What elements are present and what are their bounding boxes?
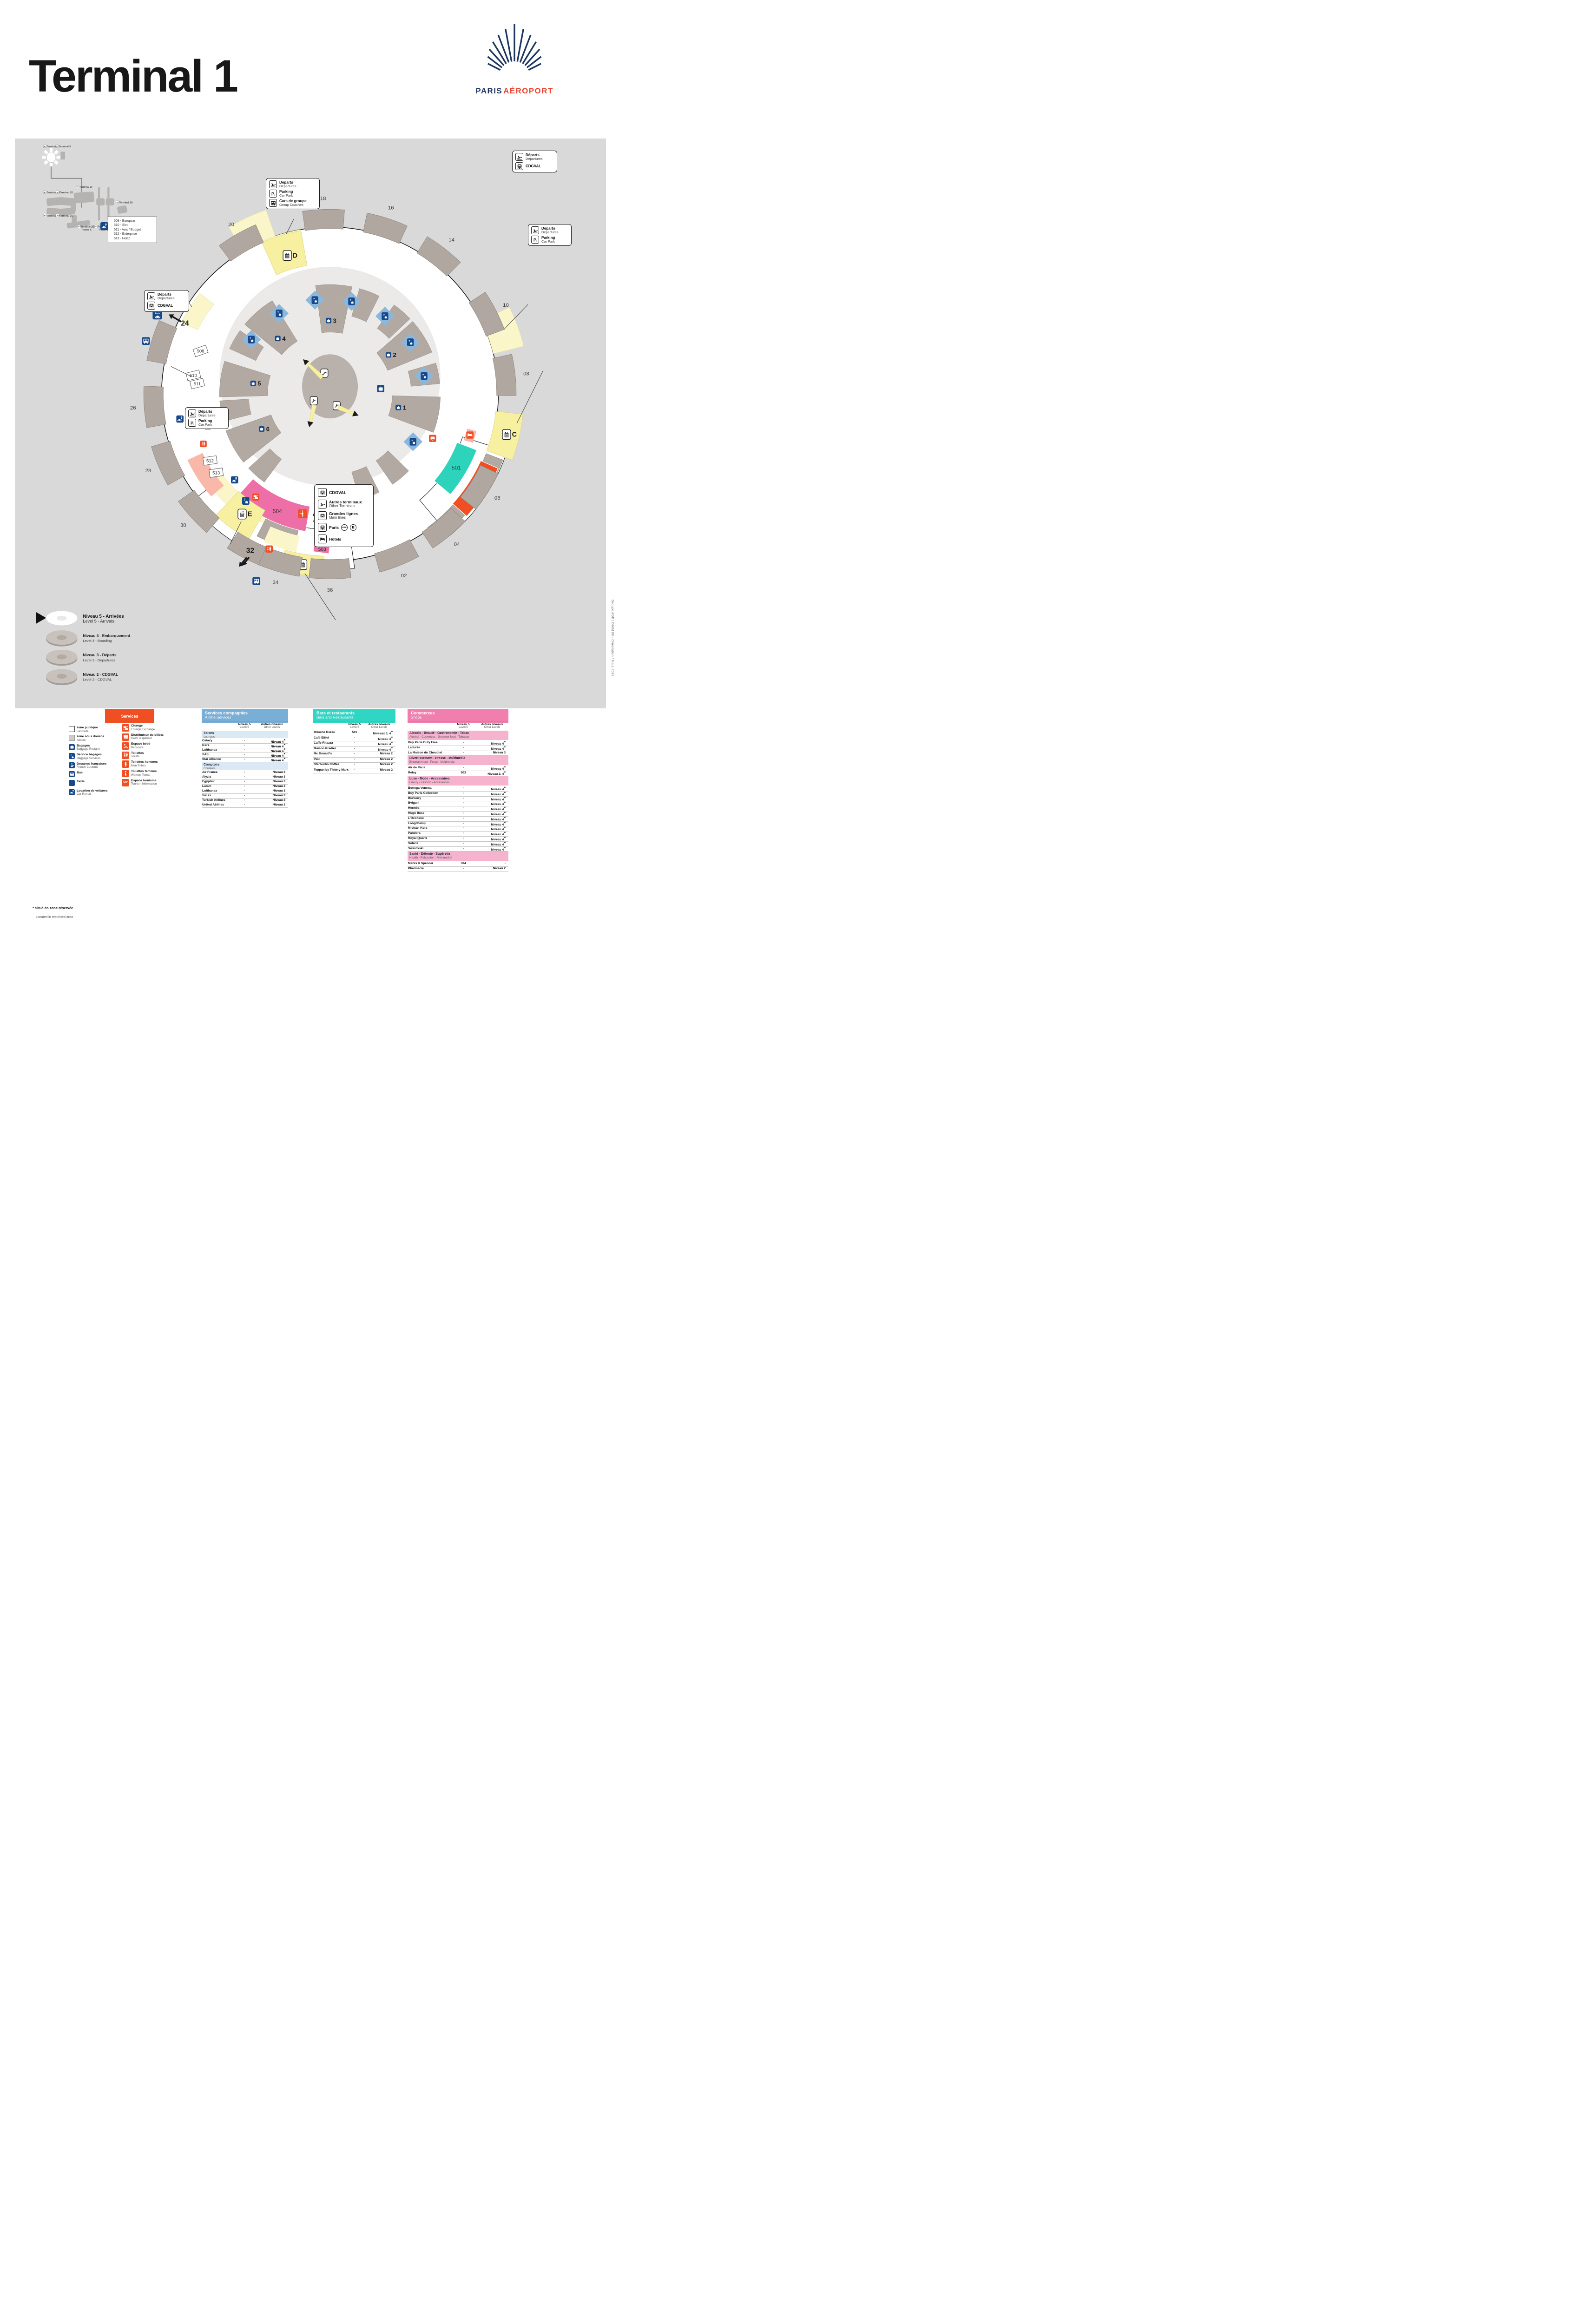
legend-item-baggage-services: Service bagagesBaggage Services [69,753,102,760]
table-row: Turkish Airlines-Niveau 3 [202,799,288,803]
callout-departures-parking-right: DépartsDepartures ParkingCar Park [528,224,572,246]
car-rental-entry: 510 - Sixt [114,223,154,227]
logo-rays-icon [487,24,541,70]
restricted-area-footnote: * Situé en zone réservée Located in rest… [33,903,73,920]
legend-item-foreign-exchange: ChangeForeign Exchange [122,724,155,732]
table-row: Paul-Niveau 2 [313,758,395,763]
svg-text:E: E [248,511,252,518]
svg-text:5: 5 [257,380,261,387]
svg-text:501: 501 [452,464,461,471]
legend-banner-services: Services [105,709,154,723]
cdgval-icon [147,302,155,310]
svg-text:Terminal 2F: Terminal 2F [79,186,93,189]
table-section-band: Divertissement - Presse - MultimédiaEnte… [408,756,508,765]
table-row: Hermès-Niveau 4* [408,806,508,812]
svg-text:16: 16 [388,205,394,211]
car-rental-entry: 513 - Hertz [114,237,154,241]
table-row: Burberry-Niveau 4* [408,797,508,802]
publication-credit: Groupe ADP / DIAM 88 - Orientation / Mar… [611,600,614,706]
svg-text:508: 508 [197,349,204,354]
legend-item-women-toilets: Toilettes femmesWomen Toilets [122,770,157,777]
callout-departures-cdgval-right: DépartsDepartures CDGVAL [512,151,557,172]
car-rental-entry: 512 - Enterprise [114,232,154,236]
table-column-headers: Niveau 5Level 5 Autres niveauxOther Leve… [202,721,288,722]
table-row: Caffe Ritazza-Niveau 4* [313,741,395,747]
table-row: La Maison du Chocolat-Niveau 3 [408,751,508,756]
table-row: Mc Donald's-Niveau 2 [313,752,395,758]
table-row: Bvlgari-Niveau 4* [408,801,508,806]
svg-text:1: 1 [403,404,406,411]
svg-text:24: 24 [181,319,189,327]
table-row: Pharmacie-Niveau 2 [408,867,508,872]
car-rental-icon [100,222,108,230]
legend-table-airlines: Niveau 5Level 5 Autres niveauxOther Leve… [202,721,288,810]
svg-text:Niveau 2 - CDGVAL: Niveau 2 - CDGVAL [83,673,118,677]
legend-item-car-rental: Location de voituresCar Rental [69,789,107,796]
svg-text:6: 6 [266,426,270,433]
table-section-band: Alcools - Beauté - Gastronomie - TabacAl… [408,731,508,740]
parking-icon [188,419,196,427]
table-row: Alyzia-Niveau 3 [202,775,288,780]
car-rental-list: 508 - Europcar510 - Sixt511 - Avis / Bud… [108,217,157,243]
svg-text:Level 3 - Departures: Level 3 - Departures [83,658,115,662]
parking-icon [269,190,277,198]
svg-text:2: 2 [393,351,396,358]
svg-text:512: 512 [206,458,214,463]
line-b-badge: B [350,524,356,531]
table-section-band: ComptoirsCounters [202,762,288,770]
svg-text:510: 510 [190,373,197,378]
table-row: Egyptair-Niveau 3 [202,780,288,785]
svg-text:30: 30 [180,522,186,528]
table-row: Teppan by Thierry Marx-Niveau 2 [313,768,395,774]
legend-item-men-toilets: Toilettes hommesMen Toilets [122,760,158,768]
table-row: Swarovski-Niveau 4* [408,847,508,852]
page-title: Terminal 1 [29,50,237,102]
legend-item-tourism-information: 502Espace tourismeTourism Information [122,779,157,786]
legend-table-shops: Niveau 5Level 5 Autres niveauxOther Leve… [408,721,508,874]
legend-item-baggage-reclaim: BagagesBaggage Reclaim [69,744,100,751]
table-row: L'Occitane-Niveau 4* [408,817,508,822]
svg-text:Terminal 2E: Terminal 2E [81,226,94,229]
table-row: Buy Paris Duty Free-Niveau 4* [408,741,508,746]
table-row: Star Alliance-Niveau 4* [202,758,288,762]
table-section-band: Santé - Détente - SupéretteHealth - Rela… [408,852,508,861]
legend-table-bars: Niveau 5Level 5 Autres niveauxOther Leve… [313,721,395,775]
table-row: Lufthansa-Niveau 3 [202,789,288,794]
svg-text:04: 04 [454,541,460,547]
table-row: Longchamp-Niveau 4* [408,822,508,827]
svg-text:10: 10 [503,303,509,308]
legend-item-babycare: Espace bébéBabycare [122,742,151,750]
table-row: Brioche Dorée501Niveaux 3, 4* [313,731,395,736]
taxi-icon: Taxis [152,310,162,319]
cdgval-icon [515,162,523,170]
car-rental-entry: 511 - Avis / Budget [114,228,154,232]
table-row: Ladurée-Niveau 4* [408,746,508,751]
table-section-band: SalonsLounges [202,731,288,738]
svg-text:20: 20 [228,222,234,228]
svg-text:Niveau 3 - Départs: Niveau 3 - Départs [83,653,117,657]
svg-text:C: C [512,431,517,439]
cdgval-icon [318,488,327,497]
table-row: Pandora-Niveau 4* [408,832,508,837]
svg-text:28: 28 [145,468,151,474]
paris-aeroport-logo: PARISAÉROPORT [465,22,564,102]
callout-departures-parking-coaches: DépartsDepartures ParkingCar Park Cars d… [266,178,320,209]
table-row: Air de Paris-Niveau 4* [408,766,508,771]
departures-icon [515,153,523,161]
coach-icon [269,199,277,207]
departures-icon [147,292,155,300]
rer-badge: RER [341,524,348,531]
table-row: Solaris-Niveau 4* [408,842,508,847]
svg-text:Niveau 4 - Embarquement: Niveau 4 - Embarquement [83,634,130,638]
table-row: Marks & Spencer504- [408,862,508,867]
svg-text:Taxis: Taxis [155,312,160,314]
svg-text:Terminal 3: Terminal 3 [59,145,71,148]
table-row: Galaxy-Niveau 4* [202,739,288,744]
legend-item-cash-dispenser: Distributeur de billetsCash Dispenser [122,733,164,741]
logo-text: PARISAÉROPORT [475,86,553,95]
table-row: Latam-Niveau 3 [202,785,288,789]
main-lines-icon [318,511,327,520]
svg-text:02: 02 [401,573,407,579]
paris-rer-icon [318,523,327,532]
callout-transport: CDGVAL Autres terminauxOther Terminals G… [314,484,374,547]
callout-departures-parking-bottom: DépartsDepartures ParkingCar Park [185,407,229,429]
svg-text:06: 06 [494,495,501,501]
svg-text:Terminal 2D: Terminal 2D [59,191,73,194]
svg-text:3: 3 [333,317,336,324]
table-row: Air France-Niveau 3 [202,771,288,775]
legend-item-bus: Bus [69,771,83,777]
svg-text:Level 5 - Arrivals: Level 5 - Arrivals [83,619,114,624]
table-row: Maison Pradier-Niveau 4* [313,747,395,753]
legend-item-french-customs: Douanes françaisesFrench Customs [69,762,106,769]
table-row: Hugo Boss-Niveau 4* [408,812,508,817]
table-row: Lufthansa-Niveau 4* [202,748,288,753]
table-row: Starbucks Coffee-Niveau 2 [313,763,395,768]
svg-text:511: 511 [194,382,201,387]
svg-text:26: 26 [130,405,136,411]
departures-icon [188,409,196,417]
car-rental-entry: 508 - Europcar [114,219,154,223]
table-row: Swiss-Niveau 3 [202,794,288,799]
legend-item-airside: zone sous douaneAirside [69,735,104,742]
departures-icon [531,226,539,234]
minimap-terminal-label: Terminal 2F [76,185,93,189]
svg-text:D: D [293,252,297,259]
table-row: Café Eiffel-Niveau 4* [313,736,395,742]
table-row: Buy Paris Collection-Niveau 4* [408,792,508,797]
table-section-band: Luxe - Mode - AccessoiresLuxury - Fashio… [408,776,508,786]
callout-departures-cdgval-left: DépartsDepartures CDGVAL [144,290,189,312]
svg-text:503: 503 [318,547,326,552]
minimap-terminal-label: Terminal 3 [56,145,71,148]
legend-item-landside: zone publiqueLandside [69,726,98,733]
hotels-icon [318,535,327,543]
other-terminals-icon [318,500,327,508]
svg-text:Portes K: Portes K [82,229,92,231]
table-row: United Airlines-Niveau 3 [202,803,288,808]
svg-text:504: 504 [273,508,282,515]
svg-text:08: 08 [523,371,529,376]
svg-text:14: 14 [448,237,454,243]
legend-item-toilets: ToilettesToilets [122,752,144,759]
table-row: Royal Quartz-Niveau 4* [408,837,508,842]
svg-text:Terminal 2C: Terminal 2C [59,215,73,218]
table-row: Relay503Niveau 2, 4* [408,771,508,776]
svg-text:Terminal 2G: Terminal 2G [119,201,132,204]
table-row: SAS-Niveau 4* [202,753,288,758]
svg-text:Niveau 5 - Arrivées: Niveau 5 - Arrivées [83,614,124,619]
table-row: Michael Kors-Niveau 4* [408,826,508,832]
table-column-headers: Niveau 5Level 5 Autres niveauxOther Leve… [313,721,395,722]
parking-icon [531,236,539,244]
svg-text:Level 2 - CDGVAL: Level 2 - CDGVAL [83,678,112,682]
table-column-headers: Niveau 5Level 5 Autres niveauxOther Leve… [408,721,508,722]
svg-text:Level 4 - Boarding: Level 4 - Boarding [83,639,112,643]
svg-text:34: 34 [273,580,279,586]
svg-text:513: 513 [212,471,220,476]
table-row: Icare-Niveau 4* [202,744,288,748]
svg-text:36: 36 [327,588,333,593]
svg-text:32: 32 [246,547,255,555]
svg-text:4: 4 [282,335,286,342]
svg-text:18: 18 [320,196,326,201]
departures-icon [269,180,277,188]
table-row: Bottega Venetta-Niveau 4* [408,786,508,792]
legend-item-taxis: Taxis [69,780,85,786]
